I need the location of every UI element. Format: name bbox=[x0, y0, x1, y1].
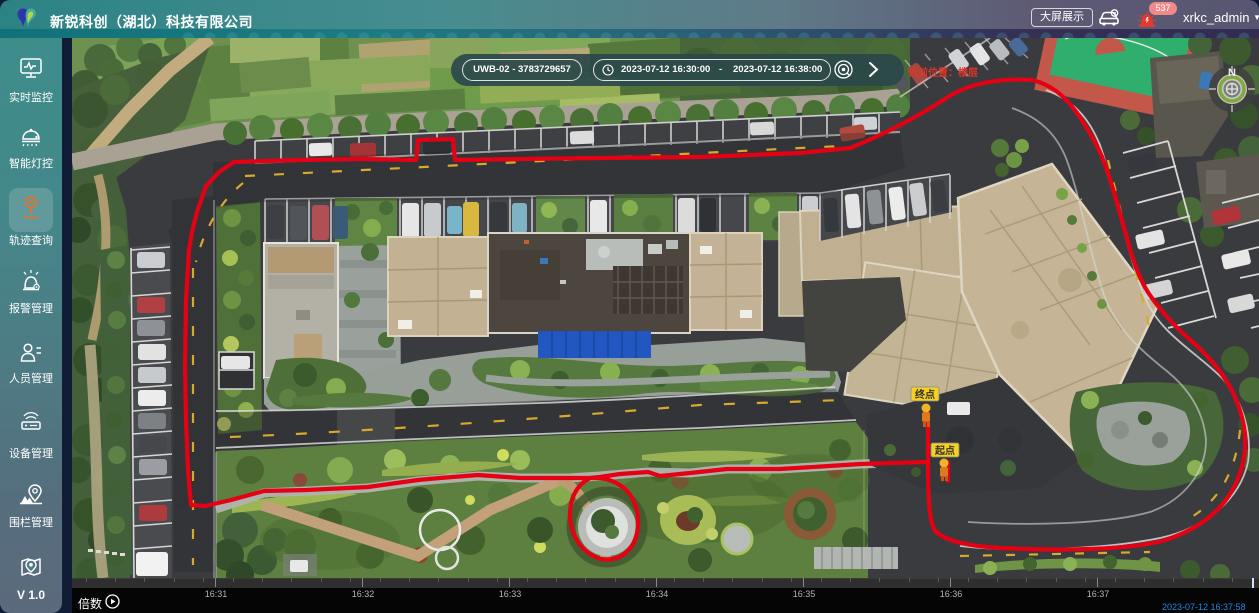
svg-text:当前位置：楼层: 当前位置：楼层 bbox=[908, 66, 978, 79]
svg-text:N: N bbox=[1228, 67, 1236, 79]
svg-text:起点: 起点 bbox=[934, 444, 955, 457]
svg-text:终点: 终点 bbox=[915, 388, 935, 401]
